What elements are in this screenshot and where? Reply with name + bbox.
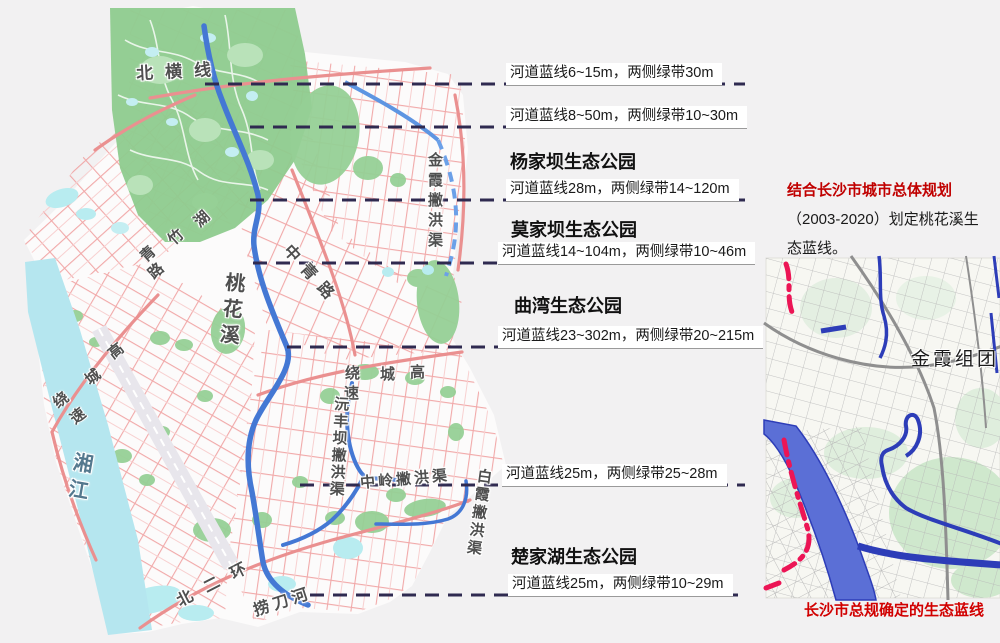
- side-note-line: （2003-2020）划定桃花溪生: [787, 205, 1000, 234]
- river-note: 河道蓝线6~15m，两侧绿带30m: [506, 63, 722, 86]
- river-note: 河道蓝线25m，两侧绿带10~29m: [508, 574, 733, 597]
- park-title: 杨家坝生态公园: [510, 148, 636, 174]
- label-ring-east-char: 城: [380, 363, 395, 384]
- side-note-heading: 结合长沙市城市总体规划: [787, 176, 1000, 205]
- label-jinxia-channel: 金霞撇洪渠: [424, 152, 445, 252]
- park-title: 楚家湖生态公园: [511, 543, 637, 569]
- label-ring-east-char: 绕: [345, 362, 360, 383]
- main-map: [22, 6, 506, 635]
- inset-map: [764, 256, 1000, 600]
- map-graphics: [0, 0, 1000, 643]
- river-note: 河道蓝线23~302m，两侧绿带20~215m: [498, 326, 763, 349]
- inset-caption: 长沙市总规确定的生态蓝线: [786, 599, 1000, 620]
- planning-figure: 北横线 湖 竹 青 路 桃花溪 中青路 金霞撇洪渠 绕 城 高 速 沅丰坝撇洪渠…: [0, 0, 1000, 643]
- side-note-line: 态蓝线。: [787, 234, 1000, 263]
- inset-area-label: 金霞组团: [911, 344, 999, 371]
- river-note: 河道蓝线14~104m，两侧绿带10~46m: [498, 242, 755, 265]
- river-note: 河道蓝线25m，两侧绿带25~28m: [502, 464, 727, 487]
- label-north-line: 北横线: [135, 55, 223, 85]
- park-title: 曲湾生态公园: [514, 292, 622, 318]
- side-note: 结合长沙市城市总体规划 （2003-2020）划定桃花溪生 态蓝线。: [787, 176, 1000, 263]
- park-title: 莫家坝生态公园: [511, 216, 637, 242]
- river-note: 河道蓝线8~50m，两侧绿带10~30m: [506, 106, 747, 129]
- label-ring-east-char: 高: [410, 361, 425, 382]
- river-note: 河道蓝线28m，两侧绿带14~120m: [506, 179, 739, 202]
